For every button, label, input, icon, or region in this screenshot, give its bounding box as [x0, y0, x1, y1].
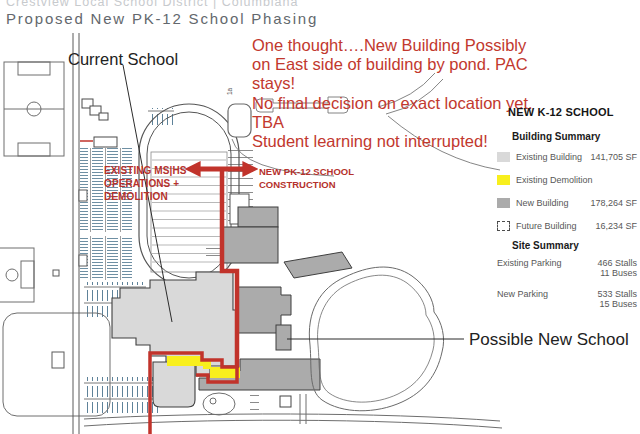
new-building-swatch [497, 198, 510, 208]
legend-panel: NEW K-12 SCHOOL Building Summary Existin… [490, 100, 640, 330]
annotation-line: on East side of building by pond. PAC [252, 55, 533, 74]
current-school-label: Current School [68, 50, 178, 69]
page-title: Proposed New PK-12 School Phasing [6, 10, 318, 27]
future-building-swatch [497, 221, 510, 231]
existing-building-swatch [497, 152, 510, 162]
existing-demolition-swatch [497, 175, 510, 185]
site-summary-title: Site Summary [512, 240, 579, 251]
legend-site-row: New Parking 533 Stalls 15 Buses [490, 287, 640, 311]
legend-title: NEW K-12 SCHOOL [508, 106, 614, 118]
legend-site-row: Existing Parking 466 Stalls 11 Buses [490, 256, 640, 280]
new-construction-label: NEW PK-12 SCHOOL CONSTRUCTION [259, 166, 354, 191]
legend-row: Future Building 16,234 SF [490, 219, 640, 234]
legend-row: New Building 178,264 SF [490, 196, 640, 211]
legend-row: Existing Demolition [490, 173, 640, 188]
north-buildings [82, 99, 117, 147]
district-subtitle: Crestview Local School District | Columb… [6, 0, 298, 9]
legend-row: Existing Building 141,705 SF [490, 150, 640, 165]
building-summary-title: Building Summary [512, 131, 600, 142]
slide-proposed-pk12-phasing: Crestview Local School District | Columb… [0, 0, 640, 434]
possible-new-school-label: Possible New School [469, 330, 629, 350]
existing-operations-label: EXISTING MS|HS OPERATIONS + DEMOLITION [104, 164, 187, 203]
annotation-line: stays! [252, 74, 533, 93]
parcel-label: 1a [226, 88, 233, 95]
annotation-line: One thought….New Building Possibly [252, 36, 533, 55]
access-road [52, 33, 87, 434]
